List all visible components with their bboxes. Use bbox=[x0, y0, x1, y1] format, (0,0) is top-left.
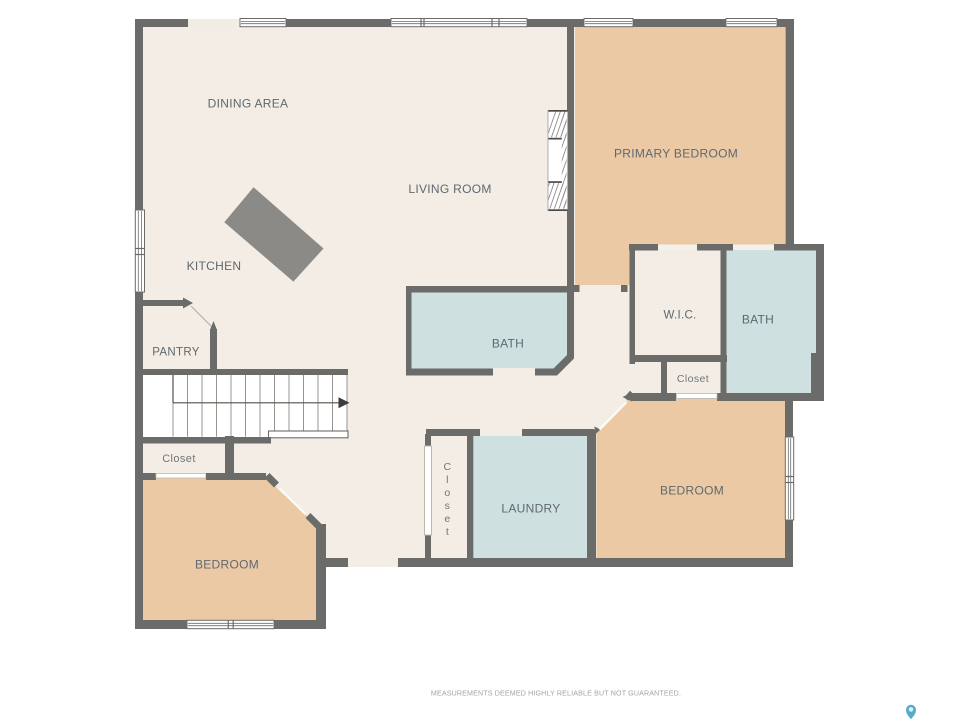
svg-text:C: C bbox=[444, 461, 452, 473]
svg-text:PANTRY: PANTRY bbox=[152, 347, 199, 359]
svg-text:BEDROOM: BEDROOM bbox=[660, 484, 724, 498]
svg-text:e: e bbox=[444, 513, 450, 525]
svg-text:t: t bbox=[446, 526, 449, 538]
svg-text:MEASUREMENTS DEEMED HIGHLY REL: MEASUREMENTS DEEMED HIGHLY RELIABLE BUT … bbox=[431, 690, 681, 698]
svg-text:LAUNDRY: LAUNDRY bbox=[501, 502, 560, 516]
svg-text:BATH: BATH bbox=[492, 337, 524, 351]
svg-text:BATH: BATH bbox=[742, 313, 774, 327]
svg-text:KITCHEN: KITCHEN bbox=[187, 259, 242, 273]
svg-text:l: l bbox=[446, 474, 449, 486]
svg-text:Closet: Closet bbox=[677, 373, 709, 385]
svg-text:BEDROOM: BEDROOM bbox=[195, 558, 259, 572]
svg-text:W.I.C.: W.I.C. bbox=[663, 310, 696, 322]
svg-text:s: s bbox=[445, 500, 451, 512]
svg-text:DINING AREA: DINING AREA bbox=[208, 97, 289, 111]
svg-text:PRIMARY BEDROOM: PRIMARY BEDROOM bbox=[614, 147, 738, 161]
svg-text:o: o bbox=[444, 487, 450, 499]
svg-text:LIVING ROOM: LIVING ROOM bbox=[408, 182, 491, 196]
svg-text:Closet: Closet bbox=[162, 453, 196, 465]
